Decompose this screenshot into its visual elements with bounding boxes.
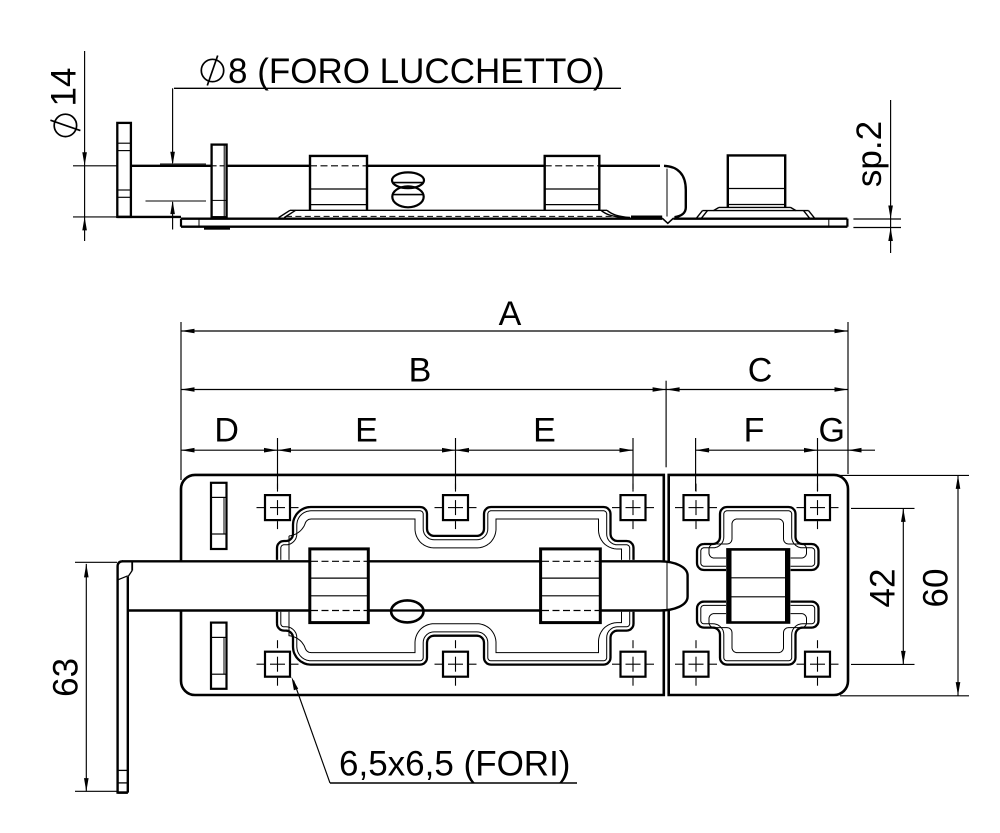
svg-text:8 (FORO LUCCHETTO): 8 (FORO LUCCHETTO)	[228, 52, 605, 91]
svg-text:B: B	[409, 352, 432, 390]
svg-text:D: D	[214, 412, 239, 450]
svg-text:E: E	[533, 412, 556, 450]
svg-text:6,5x6,5 (FORI): 6,5x6,5 (FORI)	[339, 745, 570, 784]
svg-text:F: F	[744, 412, 765, 450]
svg-text:C: C	[748, 352, 773, 390]
svg-text:E: E	[355, 412, 378, 450]
svg-text:sp.2: sp.2	[850, 121, 889, 187]
svg-text:G: G	[818, 412, 844, 450]
svg-text:60: 60	[917, 569, 956, 608]
svg-text:A: A	[499, 295, 522, 333]
svg-text:42: 42	[864, 569, 903, 608]
svg-text:63: 63	[47, 658, 86, 697]
svg-text:14: 14	[45, 68, 84, 107]
